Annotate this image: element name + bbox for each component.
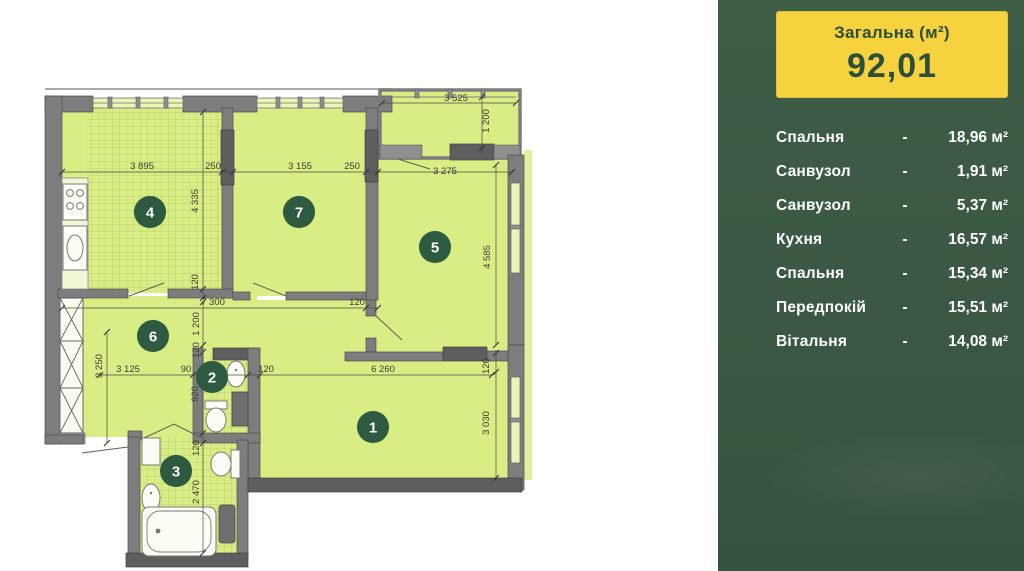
dash-separator: - — [888, 129, 922, 147]
dimension-label: 4 335 — [190, 189, 201, 213]
dimension-label: 3 125 — [116, 364, 140, 375]
room-area-row: Спальня - 15,34 м² — [776, 257, 1008, 291]
svg-text:1: 1 — [369, 420, 377, 437]
dimension-label: 250 — [205, 161, 221, 172]
dimension-label: 6 260 — [371, 364, 395, 375]
bathtub-icon — [142, 507, 216, 556]
dimension-label: 120 — [191, 342, 202, 358]
bedroom1-bottom-wall — [248, 478, 522, 492]
apartment-listing-page: 3 8952503 1552503 2753 5251 2004 3351204… — [0, 0, 1024, 571]
dash-separator: - — [888, 163, 922, 181]
room-name: Передпокій — [776, 299, 888, 317]
bedroom5-door-jamb — [366, 338, 376, 352]
info-sidebar: Загальна (м²) 92,01 Спальня - 18,96 м² С… — [718, 0, 1024, 571]
bath3-toilet-icon — [211, 450, 240, 478]
svg-text:5: 5 — [431, 240, 439, 257]
svg-text:6: 6 — [149, 329, 157, 346]
bedroom1-top-wall — [345, 352, 443, 361]
dimension-label: 3 030 — [481, 411, 492, 435]
room-name: Вітальня — [776, 333, 888, 351]
room-area-value: 1,91 м² — [922, 163, 1008, 181]
dimension-label: 3 275 — [433, 166, 457, 177]
wc2-toilet-icon — [205, 401, 227, 432]
total-area-box: Загальна (м²) 92,01 — [776, 11, 1008, 98]
wc2-sink-icon — [227, 361, 245, 387]
dimension-label: 1 200 — [191, 312, 202, 336]
floor-plan-drawing: 3 8952503 1552503 2753 5251 2004 3351204… — [0, 0, 718, 571]
svg-text:7: 7 — [295, 205, 303, 222]
room-area-row: Спальня - 18,96 м² — [776, 121, 1008, 155]
room-number-badge: 1 — [357, 411, 389, 443]
total-area-label: Загальна (м²) — [834, 23, 950, 43]
kitchen-sink-icon — [63, 226, 87, 270]
balcony-sill — [380, 145, 422, 159]
room-area-row: Кухня - 16,57 м² — [776, 223, 1008, 257]
room-area-value: 16,57 м² — [922, 231, 1008, 249]
room-area-value: 15,34 м² — [922, 265, 1008, 283]
bedroom7-wall — [233, 292, 250, 300]
kitchen-wall — [58, 289, 128, 298]
room-area-row: Санвузол - 5,37 м² — [776, 189, 1008, 223]
floor-plan-area: 3 8952503 1552503 2753 5251 2004 3351204… — [0, 0, 718, 571]
dimension-label: 2 470 — [191, 480, 202, 504]
room-number-badge: 5 — [419, 231, 451, 263]
dash-separator: - — [888, 299, 922, 317]
room-area-value: 18,96 м² — [922, 129, 1008, 147]
total-area-value: 92,01 — [847, 47, 937, 86]
top-wall — [183, 96, 257, 112]
room-number-badge: 7 — [283, 196, 315, 228]
room-name: Санвузол — [776, 197, 888, 215]
dimension-label: 3 250 — [94, 354, 105, 378]
hall-bottom-wall — [45, 435, 83, 444]
dimension-label: 120 — [481, 358, 492, 374]
bath3-washer-icon — [142, 438, 160, 465]
dimension-label: 3 155 — [288, 161, 312, 172]
room-area-row: Санвузол - 1,91 м² — [776, 155, 1008, 189]
room-area-value: 15,51 м² — [922, 299, 1008, 317]
room-name: Санвузол — [776, 163, 888, 181]
room-name: Кухня — [776, 231, 888, 249]
entrance-door-leaf — [82, 447, 128, 453]
room-area-value: 5,37 м² — [922, 197, 1008, 215]
room-number-badge: 3 — [160, 455, 192, 487]
room-area-row: Передпокій - 15,51 м² — [776, 291, 1008, 325]
dimension-label: 1 200 — [481, 109, 492, 133]
room-area-row: Вітальня - 14,08 м² — [776, 325, 1008, 359]
room-name: Спальня — [776, 265, 888, 283]
dimension-label: 920 — [190, 386, 201, 402]
room-area-value: 14,08 м² — [922, 333, 1008, 351]
dimension-label: 250 — [344, 161, 360, 172]
room-number-badge: 2 — [196, 361, 228, 393]
dimension-label: 7 300 — [201, 297, 225, 308]
balcony-sill-dark — [450, 144, 494, 160]
svg-text:2: 2 — [208, 370, 216, 387]
outer-ledge — [524, 150, 532, 480]
dimension-label: 120 — [258, 364, 274, 375]
dash-separator: - — [888, 333, 922, 351]
svg-text:3: 3 — [172, 464, 180, 481]
room-number-badge: 4 — [134, 196, 166, 228]
dimension-label: 3 895 — [130, 161, 154, 172]
bath3-heater-icon — [219, 505, 235, 543]
dimension-label: 3 525 — [444, 93, 468, 104]
room-number-badge: 6 — [137, 320, 169, 352]
wc2-boiler-icon — [232, 392, 248, 426]
dimension-label: 120 — [190, 274, 201, 290]
svg-text:4: 4 — [146, 205, 155, 222]
bath3-left-wall — [128, 437, 140, 558]
dimension-label: 90 — [181, 364, 192, 375]
dash-separator: - — [888, 231, 922, 249]
dimension-label: 120 — [191, 440, 202, 456]
dash-separator: - — [888, 265, 922, 283]
left-wall — [45, 96, 62, 444]
room-name: Спальня — [776, 129, 888, 147]
dimension-label: 120 — [349, 297, 365, 308]
dash-separator: - — [888, 197, 922, 215]
stove-icon — [63, 184, 87, 220]
dimension-label: 4 585 — [482, 245, 493, 269]
room-area-list: Спальня - 18,96 м² Санвузол - 1,91 м² Са… — [776, 121, 1008, 359]
